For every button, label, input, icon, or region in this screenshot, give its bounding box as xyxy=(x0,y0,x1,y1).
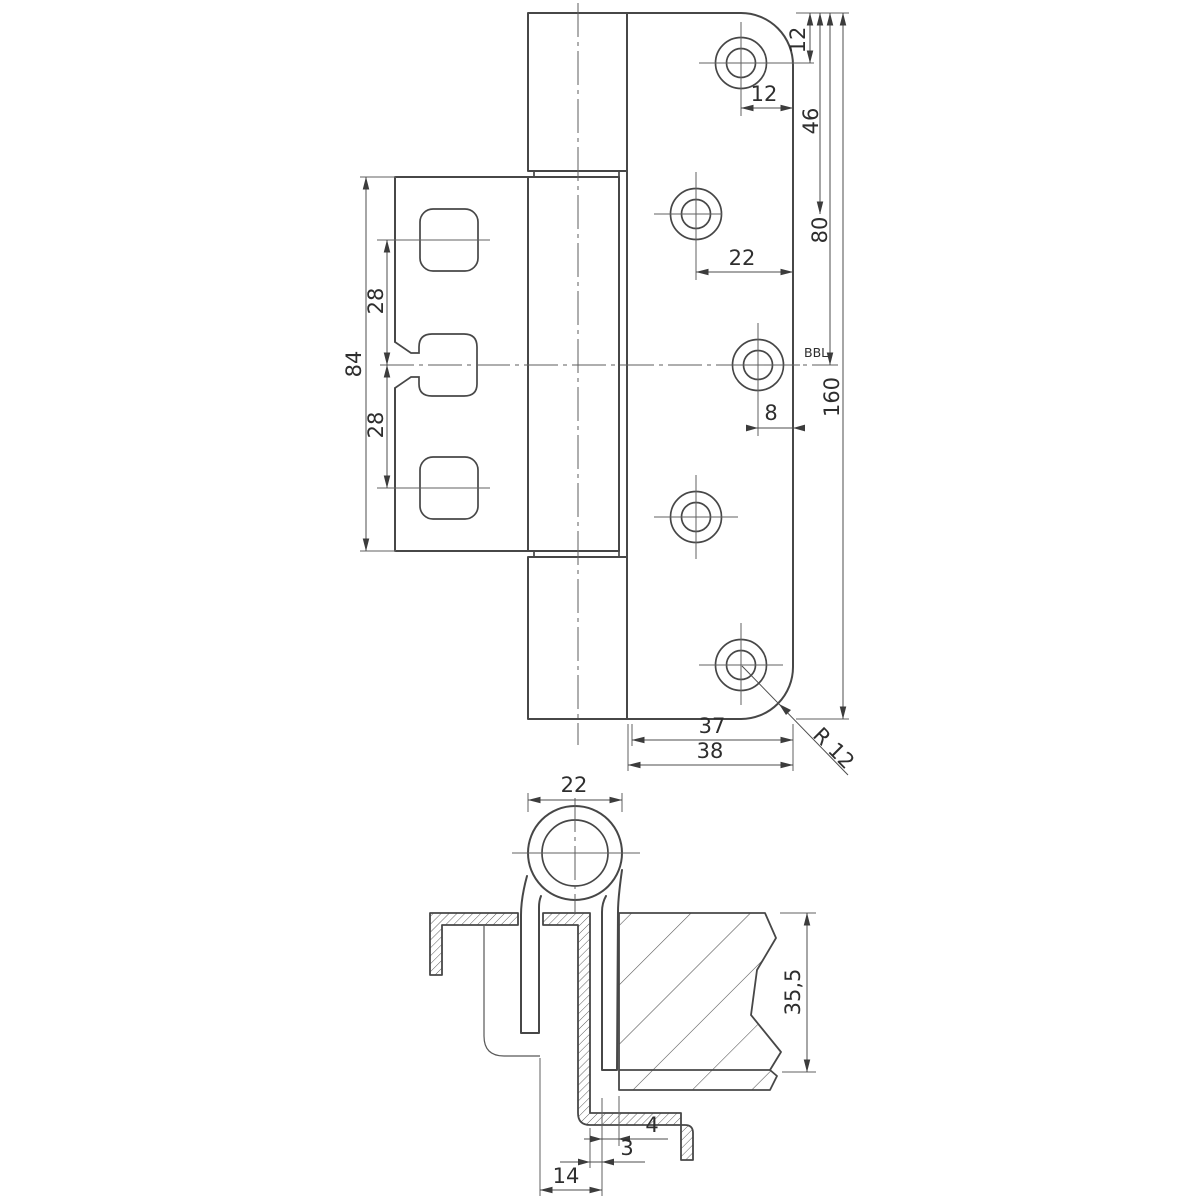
drawing-canvas: 12 46 80 160 12 22 8 BBL 84 28 28 37 xyxy=(0,0,1200,1200)
dim-text-pitch-lower: 28 xyxy=(364,412,388,439)
bbl-reference-label: BBL xyxy=(804,345,828,360)
dim-text-plate-width: 38 xyxy=(697,739,724,763)
dim-text-hole1-inset: 12 xyxy=(751,82,778,106)
dim-text-flat-width: 37 xyxy=(699,714,726,738)
dim-text-hole3-offset: 80 xyxy=(808,217,832,244)
dim-text-knuckle-diameter: 22 xyxy=(561,773,588,797)
dim-text-pitch-upper: 28 xyxy=(364,288,388,315)
dim-text-plate-height: 160 xyxy=(820,377,844,417)
paper-background xyxy=(0,0,1200,1200)
dim-text-material-thickness: 3 xyxy=(620,1136,633,1160)
technical-drawing: 12 46 80 160 12 22 8 BBL 84 28 28 37 xyxy=(0,0,1200,1200)
dim-text-hole1-offset: 12 xyxy=(786,27,810,54)
dim-text-hole3-inset: 8 xyxy=(764,401,777,425)
dim-text-hole2-inset: 22 xyxy=(729,246,756,270)
dim-text-frame-depth: 35,5 xyxy=(781,969,805,1016)
dim-text-leaf-height: 84 xyxy=(342,351,366,378)
dim-text-hole2-offset: 46 xyxy=(799,108,823,135)
dim-text-gap-width: 4 xyxy=(645,1113,658,1137)
dim-text-strap-offset: 14 xyxy=(553,1164,580,1188)
